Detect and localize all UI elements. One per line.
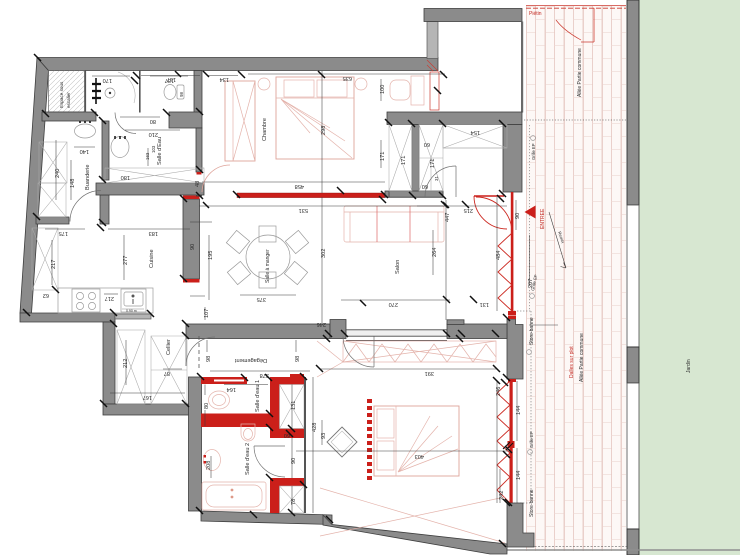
svg-text:Salle d'eau 2: Salle d'eau 2 [245, 443, 251, 475]
svg-text:391: 391 [425, 370, 434, 376]
svg-text:170: 170 [103, 77, 112, 83]
svg-text:531: 531 [299, 207, 308, 213]
svg-text:60: 60 [424, 141, 430, 147]
svg-text:Store-banne: Store-banne [529, 317, 535, 345]
svg-text:107: 107 [204, 309, 210, 318]
svg-text:163: 163 [145, 152, 150, 160]
svg-text:Grille EP: Grille EP [531, 143, 536, 160]
svg-text:208: 208 [206, 461, 212, 470]
svg-text:144: 144 [516, 471, 522, 480]
svg-text:80: 80 [150, 118, 156, 124]
svg-text:484: 484 [496, 251, 502, 260]
svg-text:60: 60 [422, 183, 428, 189]
svg-text:Salle d'eau 1: Salle d'eau 1 [255, 380, 261, 412]
svg-text:Chambre: Chambre [262, 118, 268, 141]
svg-text:Cuisine: Cuisine [149, 249, 155, 268]
svg-text:167: 167 [143, 394, 152, 400]
svg-text:171: 171 [380, 152, 386, 161]
svg-text:148: 148 [70, 179, 76, 188]
svg-text:Allée Partie commune: Allée Partie commune [579, 333, 585, 382]
svg-text:180: 180 [121, 174, 130, 180]
svg-text:98: 98 [206, 356, 212, 362]
svg-text:298: 298 [321, 126, 327, 135]
svg-text:100: 100 [380, 85, 386, 94]
svg-text:Dégagement: Dégagement [235, 357, 267, 363]
svg-text:90: 90 [515, 213, 521, 219]
svg-text:140: 140 [80, 148, 89, 154]
svg-text:Espace sous: Espace sous [59, 81, 64, 108]
svg-text:Allée Partie commune: Allée Partie commune [577, 48, 583, 97]
svg-text:Buanderie: Buanderie [85, 164, 91, 190]
svg-text:403: 403 [415, 453, 424, 459]
svg-text:103: 103 [151, 145, 156, 153]
svg-text:264: 264 [432, 248, 438, 257]
svg-text:183: 183 [149, 230, 158, 236]
svg-text:164: 164 [227, 386, 236, 392]
svg-text:0.90 m: 0.90 m [126, 309, 137, 313]
svg-text:Salle d'Eau: Salle d'Eau [157, 137, 163, 165]
svg-text:207: 207 [528, 279, 534, 288]
svg-text:90: 90 [190, 244, 196, 250]
svg-text:635: 635 [343, 75, 352, 81]
svg-text:134: 134 [220, 76, 229, 82]
svg-text:98: 98 [179, 92, 184, 97]
svg-text:217: 217 [105, 295, 114, 301]
svg-text:195: 195 [208, 251, 214, 260]
svg-text:217: 217 [51, 260, 57, 269]
svg-text:Store-banne: Store-banne [529, 489, 535, 517]
svg-text:458: 458 [295, 183, 304, 189]
svg-text:131: 131 [480, 301, 489, 307]
svg-text:447: 447 [445, 213, 451, 222]
svg-text:Salle à manger: Salle à manger [265, 249, 271, 283]
svg-text:87: 87 [164, 370, 170, 376]
svg-text:131: 131 [291, 401, 297, 410]
svg-text:Grille EP: Grille EP [529, 431, 534, 448]
svg-text:242: 242 [499, 491, 505, 500]
svg-text:escalier: escalier [66, 92, 71, 108]
svg-text:270: 270 [389, 301, 398, 307]
svg-text:62: 62 [43, 292, 49, 298]
svg-text:210: 210 [149, 131, 158, 137]
svg-text:302: 302 [321, 249, 327, 258]
svg-text:171: 171 [430, 159, 436, 168]
svg-text:90: 90 [291, 458, 297, 464]
svg-text:Piétin: Piétin [529, 11, 542, 17]
svg-text:144: 144 [516, 406, 522, 415]
svg-text:171: 171 [401, 156, 407, 165]
svg-text:93: 93 [321, 433, 327, 439]
svg-text:31: 31 [434, 176, 439, 181]
svg-text:48: 48 [195, 181, 201, 187]
svg-text:Dalles sur plot: Dalles sur plot [569, 346, 575, 378]
svg-text:Salon: Salon [395, 260, 401, 274]
svg-text:212: 212 [123, 359, 129, 368]
svg-text:428: 428 [312, 423, 318, 432]
svg-text:240: 240 [55, 169, 61, 178]
svg-text:375: 375 [257, 296, 266, 302]
svg-text:98: 98 [295, 356, 301, 362]
svg-text:246: 246 [496, 387, 502, 396]
svg-text:277: 277 [123, 256, 129, 265]
svg-text:80: 80 [204, 403, 210, 409]
svg-text:246: 246 [317, 321, 326, 327]
svg-text:137: 137 [165, 77, 174, 83]
svg-text:154: 154 [471, 129, 480, 135]
svg-text:Jardin: Jardin [686, 359, 692, 373]
svg-text:175: 175 [59, 230, 68, 236]
svg-text:78: 78 [291, 499, 297, 505]
svg-text:ENTREE: ENTREE [540, 208, 546, 229]
svg-text:Cellier: Cellier [166, 339, 172, 355]
